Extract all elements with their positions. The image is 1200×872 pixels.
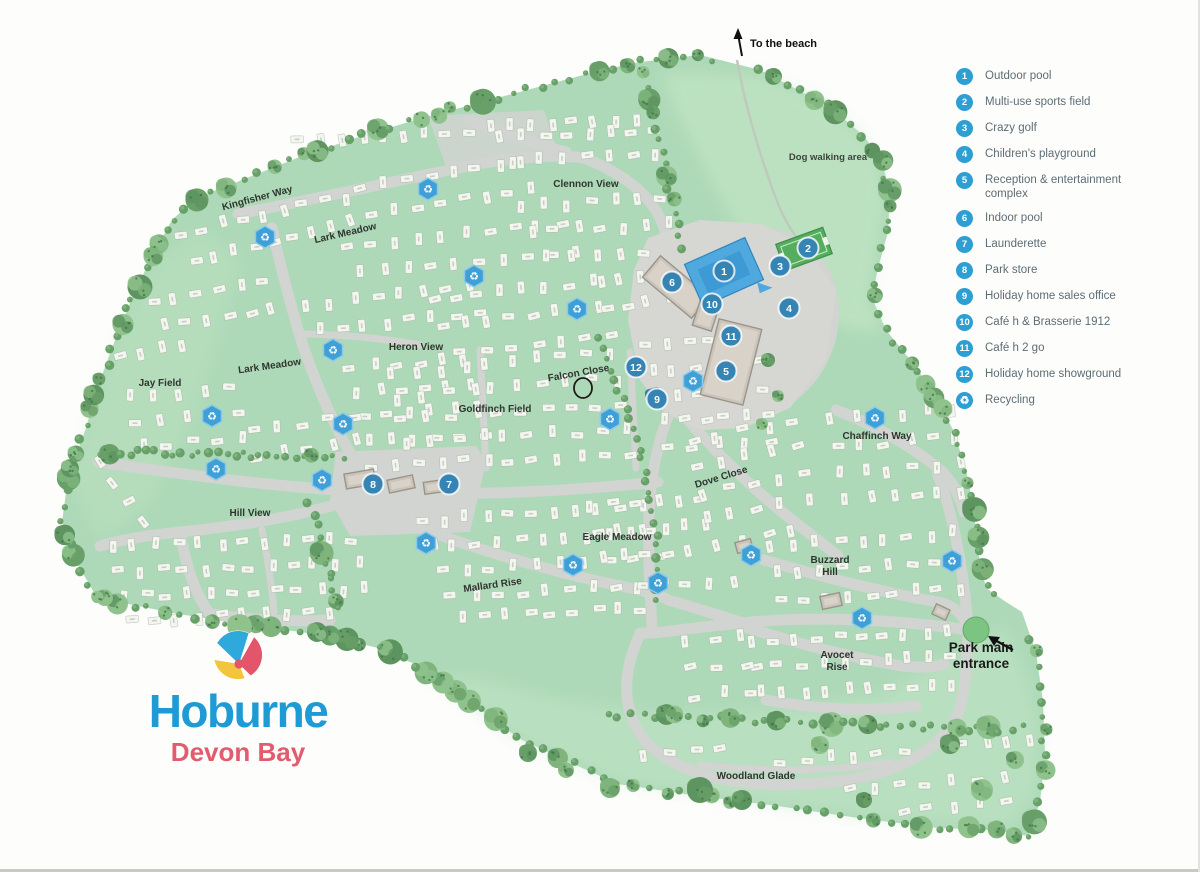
facility-marker-6: 6 [662,272,683,293]
facility-marker-4: 4 [779,298,800,319]
legend-number-badge: 7 [956,236,973,253]
facility-marker-12: 12 [626,357,647,378]
legend-number-badge: 6 [956,210,973,227]
legend-item-recycling: ♻Recycling [956,392,1156,409]
legend-item-12: 12Holiday home showground [956,366,1156,383]
recycling-icon: ♻ [206,458,225,480]
recycling-icon: ♻ [418,178,437,200]
recycling-icon: ♻ [323,339,342,361]
svg-text:♻: ♻ [469,271,479,283]
recycling-icon: ♻ [464,265,483,287]
facility-marker-9: 9 [647,389,668,410]
recycling-icon: ♻ [202,405,221,427]
svg-text:9: 9 [654,394,660,406]
legend-item-label: Reception & entertainment complex [985,172,1156,201]
legend-item-label: Café h 2 go [985,340,1044,356]
legend-number-badge: 9 [956,288,973,305]
street-label-heron-view: Heron View [389,342,443,353]
legend-item-8: 8Park store [956,262,1156,279]
to-the-beach-label: To the beach [750,38,817,50]
svg-text:♻: ♻ [260,232,270,244]
facility-marker-10: 10 [702,294,723,315]
legend-item-9: 9Holiday home sales office [956,288,1156,305]
dog-walking-area-label: Dog walking area [789,152,868,163]
street-label-buzzard-hill: Buzzard [811,555,850,566]
park-main-entrance-label: Park main [949,640,1014,655]
recycling-icon: ♻ [683,370,702,392]
recycling-icon: ♻ [600,408,619,430]
legend-item-10: 10Café h & Brasserie 1912 [956,314,1156,331]
legend-item-7: 7Launderette [956,236,1156,253]
legend-item-label: Café h & Brasserie 1912 [985,314,1110,330]
svg-text:♻: ♻ [605,414,615,426]
legend-number-badge: 3 [956,120,973,137]
svg-text:2: 2 [805,243,811,255]
svg-text:12: 12 [630,362,642,374]
svg-text:♻: ♻ [328,345,338,357]
recycling-icon: ♻ [563,554,582,576]
facility-marker-2: 2 [798,238,819,259]
facility-marker-11: 11 [721,326,742,347]
svg-text:4: 4 [786,303,792,315]
legend-item-label: Park store [985,262,1037,278]
svg-text:♻: ♻ [746,550,756,562]
svg-text:1: 1 [721,266,727,278]
legend-number-badge: 12 [956,366,973,383]
legend-number-badge: 10 [956,314,973,331]
logo-wordmark: Hoburne [118,687,358,735]
recycling-icon: ♻ [312,469,331,491]
legend-number-badge: 4 [956,146,973,163]
recycling-icon: ♻ [648,572,667,594]
legend-item-label: Holiday home sales office [985,288,1116,304]
svg-text:5: 5 [723,366,729,378]
svg-text:♻: ♻ [317,475,327,487]
svg-text:♻: ♻ [423,184,433,196]
street-label-jay-field: Jay Field [139,378,182,389]
park-main-entrance-label: entrance [953,656,1010,671]
street-label-avocet-rise: Rise [826,662,848,673]
svg-text:♻: ♻ [568,560,578,572]
logo-subtitle: Devon Bay [118,737,358,768]
svg-text:10: 10 [706,299,718,311]
recycling-icon: ♻ [255,226,274,248]
svg-text:♻: ♻ [947,556,957,568]
legend-item-label: Recycling [985,392,1035,408]
legend-item-1: 1Outdoor pool [956,68,1156,85]
street-label-goldfinch-field: Goldfinch Field [459,404,532,415]
legend-item-label: Indoor pool [985,210,1043,226]
recycling-icon: ♻ [567,298,586,320]
svg-text:♻: ♻ [207,411,217,423]
legend-item-label: Multi-use sports field [985,94,1090,110]
street-label-hill-view: Hill View [230,508,271,519]
recycling-icon: ♻ [865,407,884,429]
svg-text:♻: ♻ [572,304,582,316]
legend-item-11: 11Café h 2 go [956,340,1156,357]
legend-number-badge: 1 [956,68,973,85]
svg-text:♻: ♻ [688,376,698,388]
recycling-icon: ♻ [333,413,352,435]
svg-text:♻: ♻ [338,419,348,431]
svg-text:♻: ♻ [653,578,663,590]
svg-text:7: 7 [446,479,452,491]
legend-item-label: Crazy golf [985,120,1037,136]
legend-item-5: 5Reception & entertainment complex [956,172,1156,201]
svg-text:♻: ♻ [870,413,880,425]
recycling-icon: ♻ [416,532,435,554]
legend-item-label: Launderette [985,236,1046,252]
street-label-eagle-meadow: Eagle Meadow [583,532,652,543]
facility-marker-3: 3 [770,256,791,277]
recycling-icon: ♻ [956,392,973,409]
legend-item-4: 4Children's playground [956,146,1156,163]
scanned-park-map-page: Kingfisher WayLark MeadowClennon ViewHer… [0,0,1200,872]
svg-text:♻: ♻ [211,464,221,476]
svg-text:♻: ♻ [857,613,867,625]
legend-number-badge: 11 [956,340,973,357]
svg-text:♻: ♻ [421,538,431,550]
hoburne-logo: Hoburne Devon Bay [118,628,358,768]
facility-marker-8: 8 [363,474,384,495]
street-label-clennon-view: Clennon View [553,179,619,190]
legend-item-label: Children's playground [985,146,1096,162]
street-label-chaffinch-way: Chaffinch Way [842,431,912,442]
svg-text:8: 8 [370,479,376,491]
facility-marker-5: 5 [716,361,737,382]
recycling-icon: ♻ [741,544,760,566]
legend-item-2: 2Multi-use sports field [956,94,1156,111]
facility-marker-7: 7 [439,474,460,495]
svg-text:6: 6 [669,277,675,289]
facility-marker-1: 1 [714,261,735,282]
svg-text:11: 11 [725,331,736,343]
map-legend: 1Outdoor pool2Multi-use sports field3Cra… [956,68,1156,418]
legend-number-badge: 8 [956,262,973,279]
legend-item-label: Holiday home showground [985,366,1121,382]
street-label-buzzard-hill: Hill [822,567,838,578]
recycling-icon: ♻ [852,607,871,629]
legend-number-badge: 5 [956,172,973,189]
svg-text:3: 3 [777,261,783,273]
beach-ball-icon [211,628,265,682]
legend-item-3: 3Crazy golf [956,120,1156,137]
recycling-icon: ♻ [942,550,961,572]
legend-item-label: Outdoor pool [985,68,1052,84]
legend-item-6: 6Indoor pool [956,210,1156,227]
street-label-woodland-glade: Woodland Glade [717,771,796,782]
street-label-avocet-rise: Avocet [821,650,855,661]
legend-number-badge: 2 [956,94,973,111]
